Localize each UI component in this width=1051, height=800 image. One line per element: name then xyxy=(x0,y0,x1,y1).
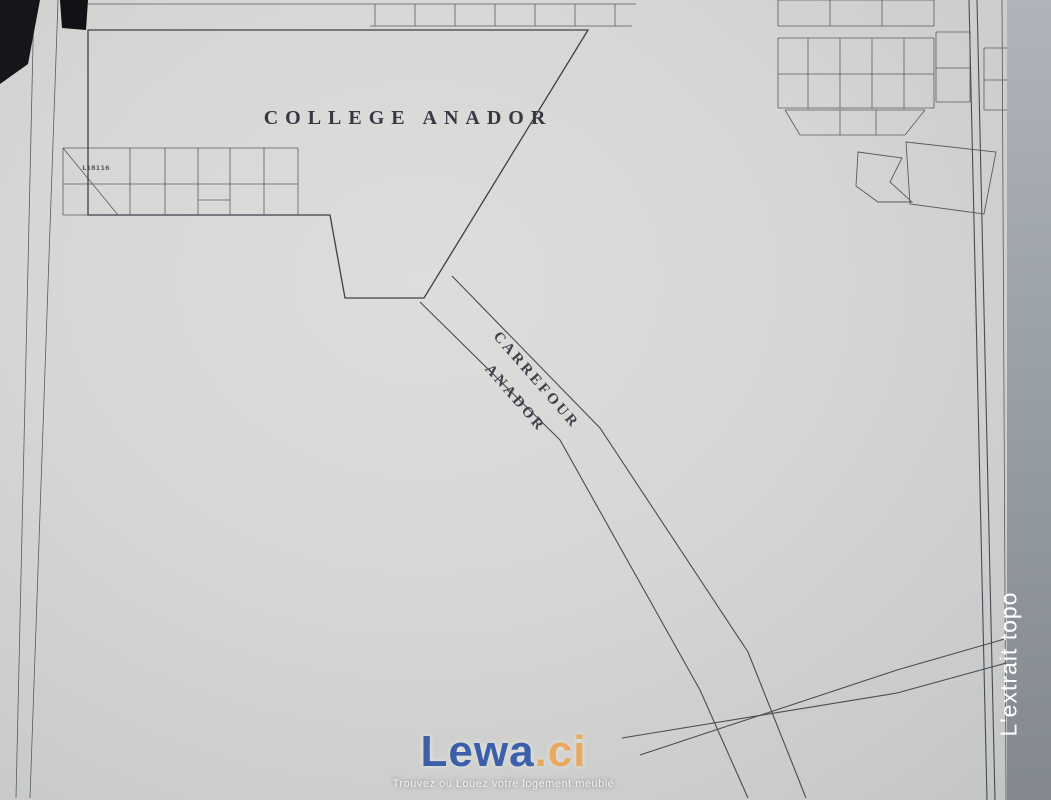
college-block-outline xyxy=(88,30,588,298)
map-polygon xyxy=(0,0,40,84)
map-polygon xyxy=(906,142,996,214)
map-line xyxy=(16,0,34,798)
map-line xyxy=(30,0,58,798)
map-polygon xyxy=(60,0,88,30)
logo-tagline: Trouvez ou Louez votre logement meublé xyxy=(0,778,1007,790)
parcel-label: L18116 xyxy=(82,164,110,172)
road-line xyxy=(969,0,987,800)
map-line xyxy=(905,110,925,135)
scanned-cadastral-map: COLLEGE ANADORCARREFOURANADORL18116 L'ex… xyxy=(0,0,1051,800)
road-line xyxy=(420,302,748,798)
map-canvas: COLLEGE ANADORCARREFOURANADORL18116 xyxy=(0,0,1051,800)
map-polygon xyxy=(856,152,912,202)
photo-edge-strip: L'extrait topo xyxy=(1007,0,1051,800)
road-line xyxy=(977,0,995,800)
map-line xyxy=(63,148,118,215)
logo-brand: Lewa xyxy=(421,727,535,776)
lewa-logo: Lewa.ci xyxy=(0,727,1007,777)
map-line xyxy=(785,110,800,135)
lewa-watermark: Lewa.ci Trouvez ou Louez votre logement … xyxy=(0,727,1007,790)
college-label: COLLEGE ANADOR xyxy=(264,107,553,129)
side-caption: L'extrait topo xyxy=(996,477,1023,737)
logo-tld: .ci xyxy=(535,727,587,776)
